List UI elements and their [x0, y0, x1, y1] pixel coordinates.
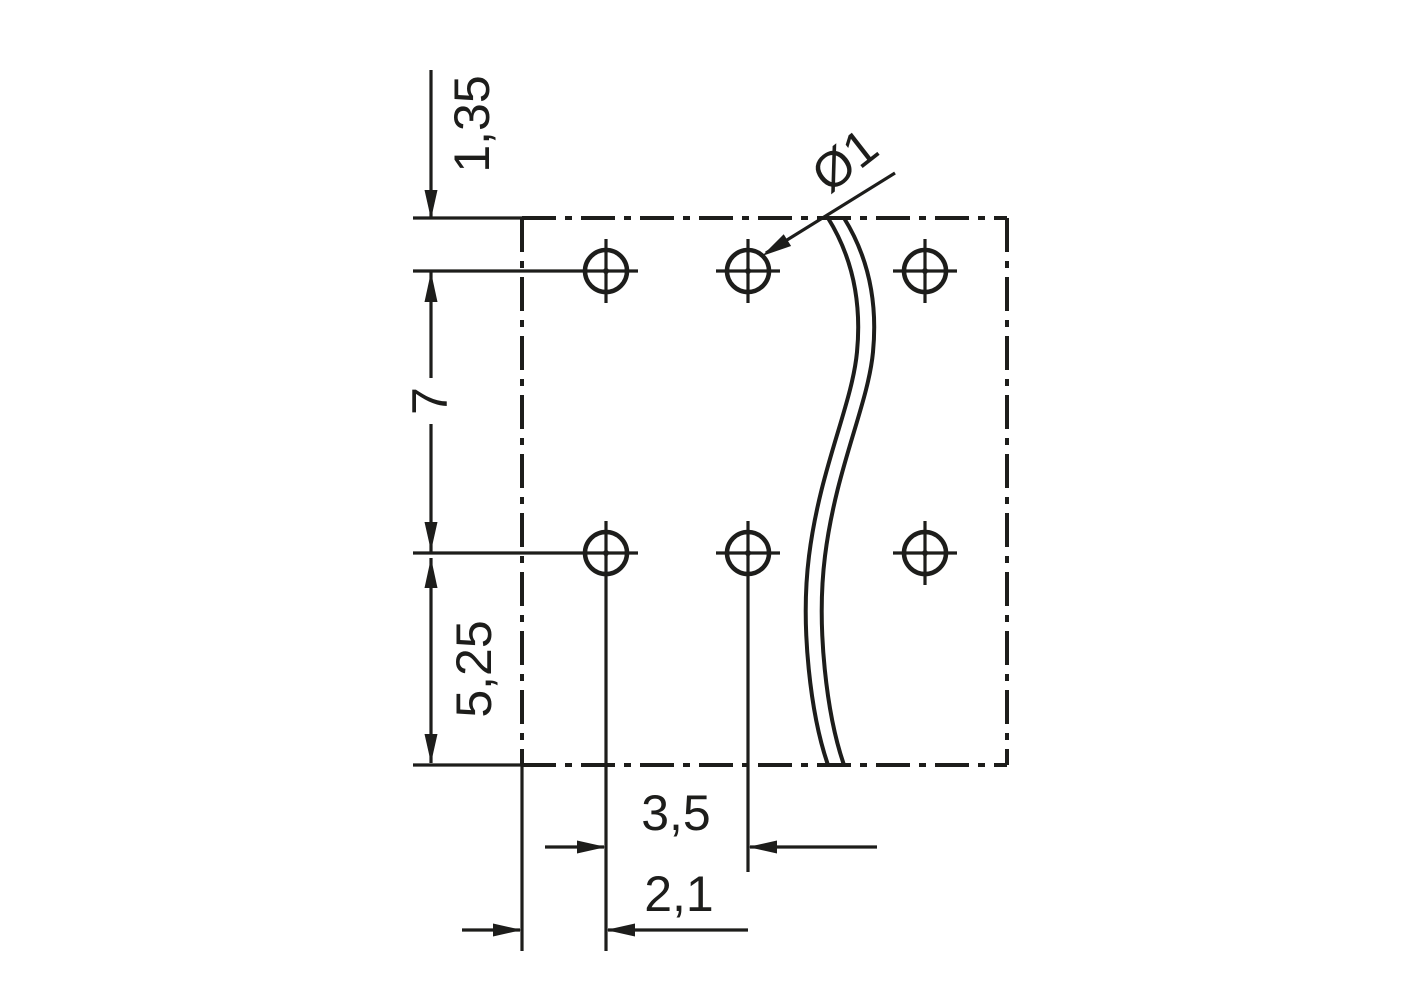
hole-center-dot	[603, 268, 609, 274]
dimension-row-pitch: 7	[402, 272, 458, 552]
drilling-plan-drawing: 1,35 7 5,25 3,5	[0, 0, 1410, 1004]
dimension-top-offset: 1,35	[425, 70, 501, 219]
dim-label-bottom-offset: 5,25	[446, 620, 502, 717]
technical-drawing-canvas: 1,35 7 5,25 3,5	[0, 0, 1410, 1004]
dim-label-row-pitch: 7	[402, 387, 458, 415]
arrowhead-down	[425, 734, 438, 763]
board-outline	[522, 218, 1007, 765]
arrowhead-down	[425, 190, 438, 219]
arrowhead-up	[425, 272, 438, 302]
dim-label-hole-diameter: Ø1	[801, 118, 888, 203]
dim-label-top-offset: 1,35	[444, 75, 500, 172]
arrowhead-left	[748, 841, 777, 854]
arrowhead-right	[493, 924, 522, 937]
break-curve-right	[822, 218, 874, 765]
hole-center-dot	[603, 550, 609, 556]
arrowhead-up	[425, 558, 438, 588]
arrowhead-left	[606, 924, 635, 937]
dim-label-edge-offset: 2,1	[644, 866, 714, 922]
hole-center-dot	[922, 550, 928, 556]
dim-label-hole-pitch: 3,5	[641, 785, 711, 841]
dimension-hole-pitch: 3,5	[545, 785, 877, 854]
arrowhead-leader	[762, 234, 791, 256]
break-curve-left	[806, 218, 858, 765]
arrowhead-right	[577, 841, 606, 854]
mounting-holes	[585, 250, 946, 574]
dimension-bottom-offset: 5,25	[425, 558, 503, 763]
hole-center-dot	[922, 268, 928, 274]
break-line	[806, 218, 874, 765]
leader-hole-diameter: Ø1	[762, 118, 895, 256]
hole-center-dot	[745, 550, 751, 556]
hole-center-dot	[745, 268, 751, 274]
arrowhead-down	[425, 522, 438, 551]
